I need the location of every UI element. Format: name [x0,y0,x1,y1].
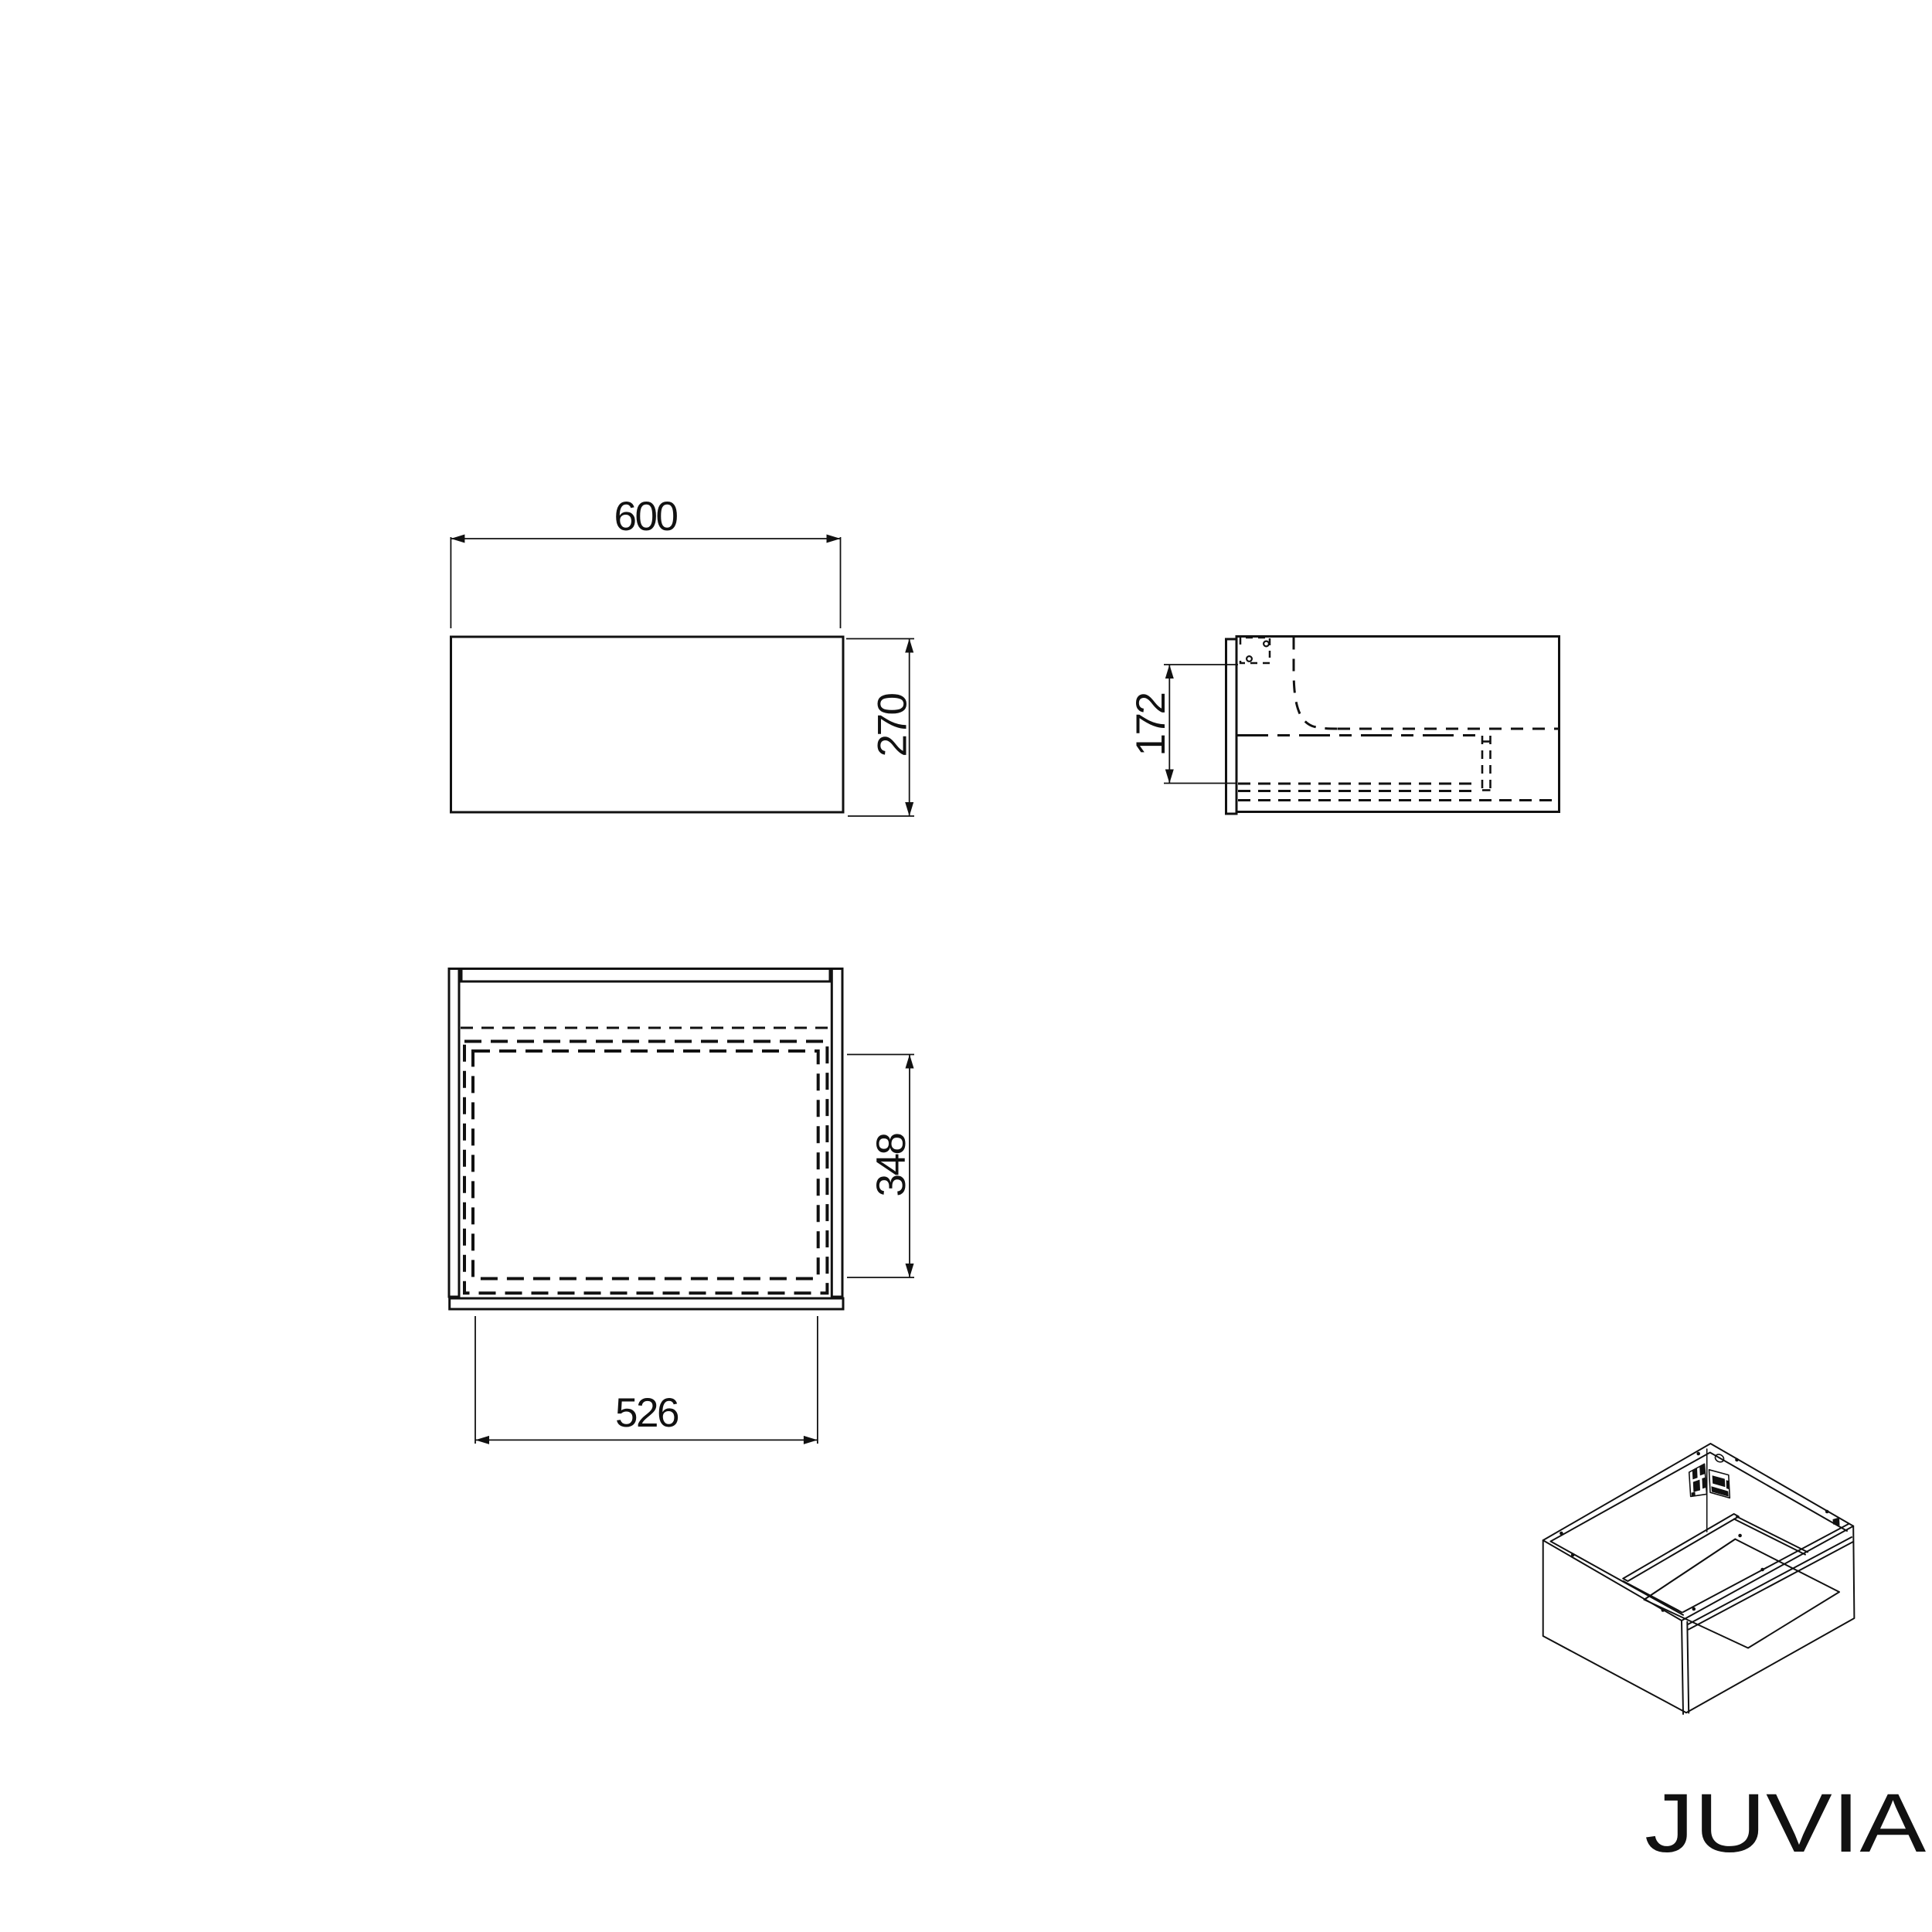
svg-text:600: 600 [614,494,678,539]
svg-text:526: 526 [615,1390,679,1436]
svg-text:JUVIA: JUVIA [1645,1777,1926,1870]
svg-text:270: 270 [869,694,915,757]
svg-text:172: 172 [1128,694,1174,757]
svg-text:348: 348 [869,1134,914,1197]
